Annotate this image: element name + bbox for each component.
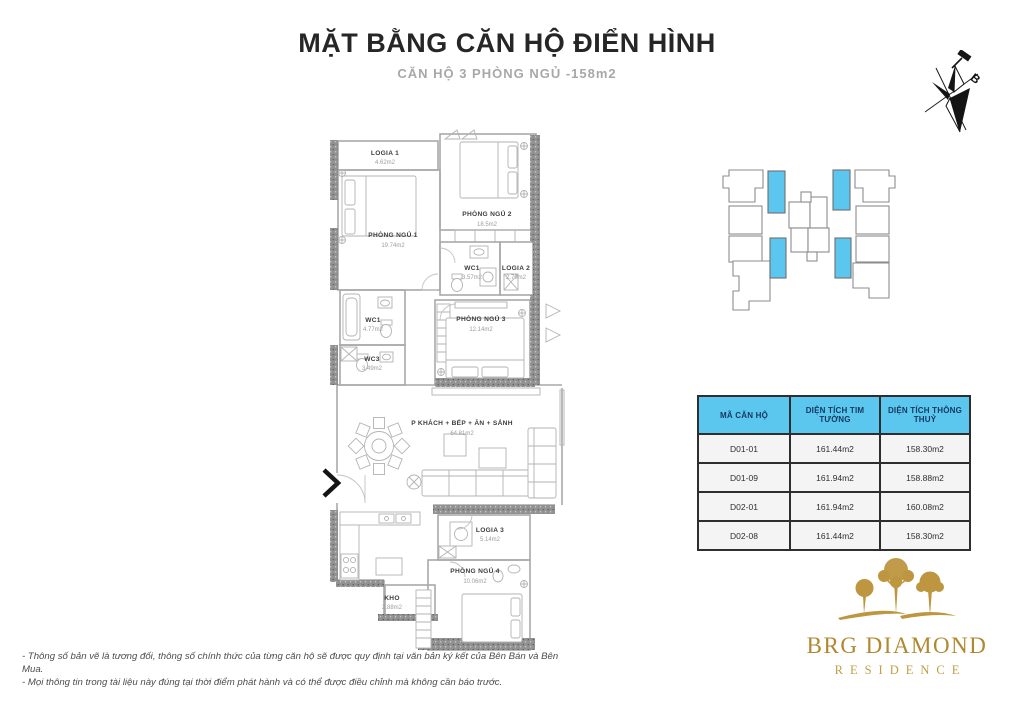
room-label-wc1a: WC1 [464,265,480,272]
floor-plan: LOGIA 1 4.62m2 PHÒNG NGỦ 1 19.74m2 PHÒNG… [322,128,572,653]
room-area-living: 64.81m2 [450,431,474,437]
unit-code: D02-08 [698,521,790,550]
room-area-logia3: 5.14m2 [480,537,501,543]
room-label-logia1: LOGIA 1 [371,150,399,157]
table-row: D02-08 161.44m2 158.30m2 [698,521,970,550]
carpet-area: 160.08m2 [880,492,970,521]
furniture [337,142,556,648]
carpet-area: 158.30m2 [880,434,970,463]
room-area-bedroom2: 18.5m2 [477,222,498,228]
gross-area: 161.94m2 [790,492,880,521]
compass-north-label: B [968,70,984,87]
disclaimer-line-2: - Mọi thông tin trong tài liệu này đúng … [22,676,582,689]
room-label-wc1b: WC1 [365,317,381,324]
page-title: MẶT BẰNG CĂN HỘ ĐIỂN HÌNH [0,28,1014,59]
brand-name: BRG DIAMOND [788,633,1006,659]
disclaimer-notes: - Thông số bản vẽ là tương đối, thông số… [22,650,582,689]
room-area-logia2: 2.79m2 [506,275,527,281]
room-label-logia2: LOGIA 2 [502,265,530,272]
carpet-area: 158.88m2 [880,463,970,492]
unit-code: D02-01 [698,492,790,521]
gross-area: 161.44m2 [790,434,880,463]
room-area-logia1: 4.62m2 [375,160,396,166]
room-label-bedroom3: PHÒNG NGỦ 3 [456,314,505,323]
brand-subname: RESIDENCE [788,663,1006,678]
col-unit-code: MÃ CĂN HỘ [698,396,790,434]
table-row: D01-09 161.94m2 158.88m2 [698,463,970,492]
table-row: D01-01 161.44m2 158.30m2 [698,434,970,463]
logo-trees-icon [788,554,1006,626]
room-area-wc1b: 4.77m2 [363,327,384,333]
disclaimer-line-1: - Thông số bản vẽ là tương đối, thông số… [22,650,582,676]
room-area-wc3: 3.49m2 [362,366,383,372]
room-area-wc1a: 3.57m2 [462,275,483,281]
room-area-bedroom4: 10.06m2 [463,579,487,585]
table-row: D02-01 161.94m2 160.08m2 [698,492,970,521]
unit-area-table: MÃ CĂN HỘ DIỆN TÍCH TIM TƯỜNG DIỆN TÍCH … [697,395,971,551]
col-carpet-area: DIỆN TÍCH THÔNG THUỶ [880,396,970,434]
room-area-bedroom3: 12.14m2 [469,327,493,333]
room-label-living: P KHÁCH + BẾP + ĂN + SẢNH [411,417,513,427]
floor-plan-sheet: MẶT BẰNG CĂN HỘ ĐIỂN HÌNH CĂN HỘ 3 PHÒNG… [0,0,1014,717]
room-label-wc3: WC3 [364,356,380,363]
room-label-bedroom1: PHÒNG NGỦ 1 [368,230,417,239]
gross-area: 161.44m2 [790,521,880,550]
room-label-bedroom2: PHÒNG NGỦ 2 [462,209,511,218]
room-label-bedroom4: PHÒNG NGỦ 4 [450,566,499,575]
room-area-kho: 2.88m2 [382,605,403,611]
compass-icon: B [920,50,986,142]
room-label-kho: KHO [384,595,400,602]
gross-area: 161.94m2 [790,463,880,492]
col-gross-area: DIỆN TÍCH TIM TƯỜNG [790,396,880,434]
carpet-area: 158.30m2 [880,521,970,550]
page-subtitle: CĂN HỘ 3 PHÒNG NGỦ -158m2 [0,66,1014,81]
entry-arrow [324,470,338,496]
unit-code: D01-09 [698,463,790,492]
header: MẶT BẰNG CĂN HỘ ĐIỂN HÌNH CĂN HỘ 3 PHÒNG… [0,28,1014,81]
room-area-bedroom1: 19.74m2 [381,243,405,249]
brand-logo: BRG DIAMOND RESIDENCE [788,554,1006,678]
room-label-logia3: LOGIA 3 [476,527,504,534]
key-plan-units [723,170,895,310]
table-header-row: MÃ CĂN HỘ DIỆN TÍCH TIM TƯỜNG DIỆN TÍCH … [698,396,970,434]
unit-code: D01-01 [698,434,790,463]
key-plan [703,148,955,320]
